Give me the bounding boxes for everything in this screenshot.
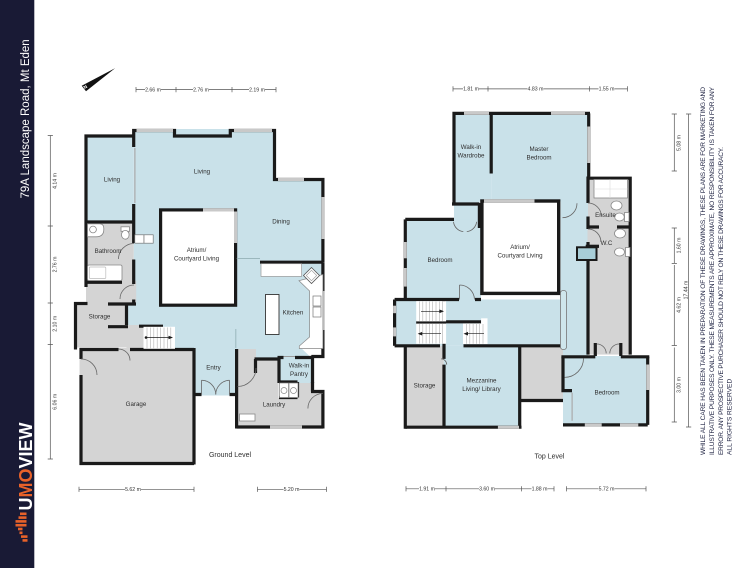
- svg-text:Storage: Storage: [414, 383, 436, 390]
- svg-text:4.14 m: 4.14 m: [53, 173, 59, 189]
- svg-text:3.00 m: 3.00 m: [677, 377, 683, 393]
- svg-text:Bedroom: Bedroom: [427, 257, 452, 264]
- svg-text:1.60 m: 1.60 m: [677, 238, 683, 254]
- svg-text:2.66 m: 2.66 m: [145, 87, 161, 93]
- svg-text:Pantry: Pantry: [290, 371, 309, 378]
- svg-text:1.81 m: 1.81 m: [463, 87, 479, 93]
- svg-text:UMOVIEW: UMOVIEW: [16, 422, 36, 510]
- svg-text:Ensuite: Ensuite: [595, 212, 616, 219]
- svg-text:Master: Master: [530, 146, 549, 153]
- svg-text:Bedroom: Bedroom: [594, 390, 619, 397]
- svg-text:1.88 m: 1.88 m: [532, 487, 548, 493]
- svg-text:79A Landscape Road, Mt Eden: 79A Landscape Road, Mt Eden: [20, 39, 32, 198]
- svg-text:2.76 m: 2.76 m: [53, 257, 59, 273]
- svg-text:WHILE ALL CARE HAS BEEN TAKEN: WHILE ALL CARE HAS BEEN TAKEN IN PREPARA…: [700, 87, 707, 455]
- svg-text:5.20 m: 5.20 m: [284, 487, 300, 493]
- svg-text:ILLUSTRATIVE PURPOSES ONLY. TH: ILLUSTRATIVE PURPOSES ONLY. THESE MEASUR…: [709, 86, 716, 455]
- svg-text:Courtyard Living: Courtyard Living: [174, 256, 220, 263]
- svg-text:3.60 m: 3.60 m: [479, 487, 495, 493]
- svg-text:4.83 m: 4.83 m: [528, 87, 544, 93]
- svg-text:Ground Level: Ground Level: [209, 452, 251, 459]
- svg-text:2.10 m: 2.10 m: [53, 316, 59, 332]
- svg-text:W.C: W.C: [601, 240, 613, 247]
- svg-text:Entry: Entry: [206, 365, 221, 372]
- svg-text:Living/ Library: Living/ Library: [462, 386, 501, 393]
- svg-text:6.06 m: 6.06 m: [53, 394, 59, 410]
- svg-text:Dining: Dining: [272, 219, 290, 226]
- svg-text:Top Level: Top Level: [535, 454, 565, 461]
- svg-text:1.55 m: 1.55 m: [599, 87, 615, 93]
- svg-text:Wardrobe: Wardrobe: [458, 153, 485, 160]
- svg-text:Bathroom: Bathroom: [95, 248, 122, 255]
- svg-text:2.76 m: 2.76 m: [193, 87, 209, 93]
- svg-text:Courtyard Living: Courtyard Living: [497, 253, 543, 260]
- svg-text:2.19 m: 2.19 m: [249, 87, 265, 93]
- svg-text:Walk-in: Walk-in: [289, 363, 310, 370]
- svg-text:ERROR. ANY PROSPECTIVE PURCHAS: ERROR. ANY PROSPECTIVE PURCHASER SHOULD …: [718, 147, 725, 455]
- svg-text:1.91 m: 1.91 m: [419, 487, 435, 493]
- svg-text:ALL RIGHTS RESERVED: ALL RIGHTS RESERVED: [727, 379, 734, 455]
- svg-text:Bedroom: Bedroom: [526, 155, 551, 162]
- svg-text:5.08 m: 5.08 m: [677, 135, 683, 151]
- svg-text:Garage: Garage: [126, 401, 147, 408]
- svg-text:Laundry: Laundry: [263, 402, 286, 409]
- svg-text:Storage: Storage: [89, 314, 111, 321]
- svg-text:Atrium/: Atrium/: [510, 244, 530, 251]
- svg-text:5.72 m: 5.72 m: [599, 487, 615, 493]
- svg-text:17.44 m: 17.44 m: [684, 281, 690, 300]
- svg-text:Living: Living: [104, 177, 121, 184]
- svg-text:4.62 m: 4.62 m: [677, 297, 683, 313]
- svg-text:Atrium/: Atrium/: [187, 247, 207, 254]
- svg-text:Mezzanine: Mezzanine: [467, 378, 497, 385]
- svg-text:Kitchen: Kitchen: [283, 310, 304, 317]
- svg-text:Walk-in: Walk-in: [461, 144, 482, 151]
- svg-text:5.62 m: 5.62 m: [125, 487, 141, 493]
- svg-text:Living: Living: [194, 169, 211, 176]
